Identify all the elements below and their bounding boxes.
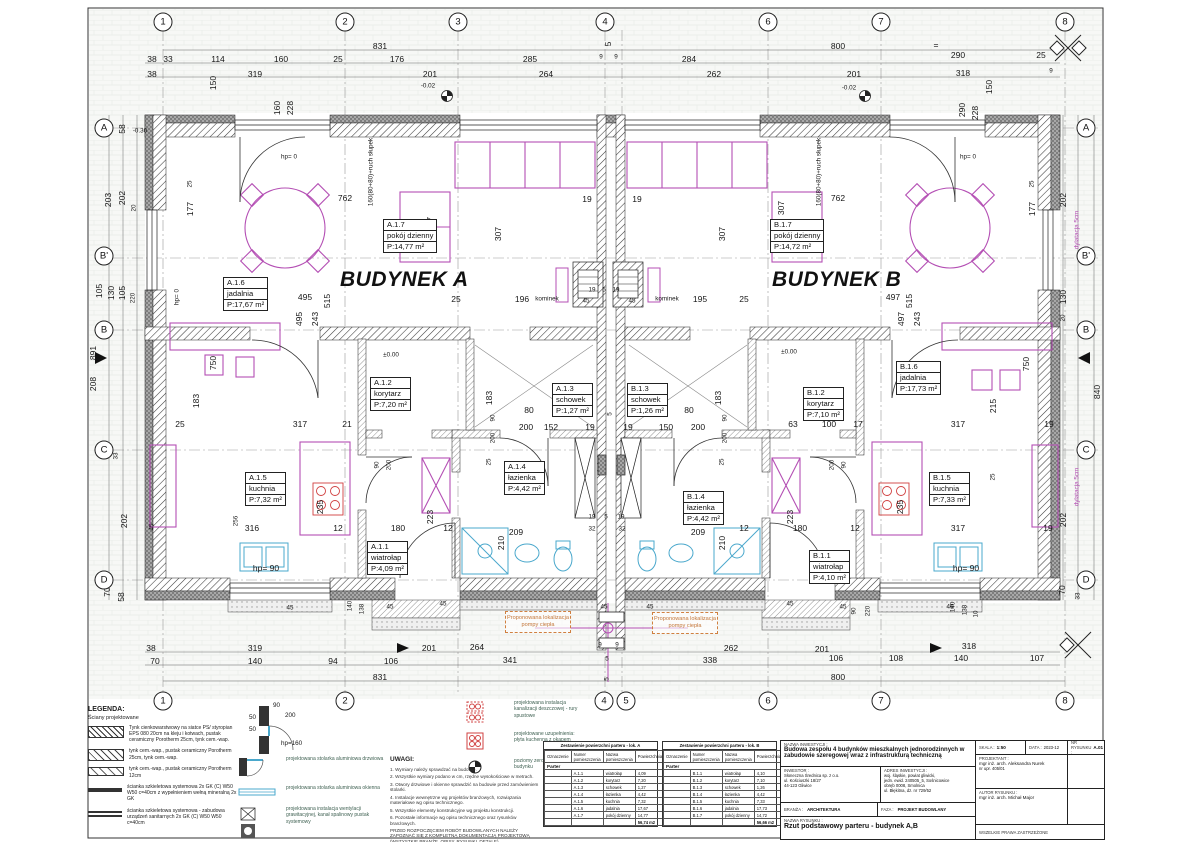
designer-signature-cell: [1068, 755, 1104, 789]
schedule-row: A.1.7pokój dzienny14,77: [545, 812, 665, 819]
legend-openings-block: 50 50 90 200 hp=160 projektowana stolark…: [237, 700, 389, 842]
schedule-row: B.1.6jadalnia17,73: [664, 805, 784, 812]
legend-wall-item: Tynk cienkowarstwowy na siatce PS/ styro…: [88, 725, 238, 744]
note-line: 1. Wymiary należy sprawdzać na budowie.: [390, 767, 542, 773]
schedule-cell: B.1.7: [690, 812, 722, 819]
schedule-row: B.1.3schowek1,26: [664, 784, 784, 791]
legend-item-window: projektowana stolarka aluminiowa okienna: [237, 785, 389, 799]
title-block: NAZWA INWESTYCJI : Budowa zespołu 4 budy…: [780, 740, 1105, 840]
schedule-cell: kuchnia: [722, 798, 754, 805]
wall-hatch-swatch: [88, 811, 122, 813]
detail-dim: 200: [285, 712, 296, 720]
discipline-value: ARCHITEKTURA: [807, 807, 840, 812]
schedule-title: Zestawien­ie powierzchni parteru - lok. …: [544, 742, 657, 750]
author-name: mgr inż. arch. Michał Major: [979, 795, 1064, 800]
schedule-cell: jadalnia: [722, 805, 754, 812]
detail-dim: 90: [273, 702, 280, 710]
schedule-cell: pokój dzienny: [603, 812, 635, 819]
legend-wall-item: ścianka szkieletowa systemowa - zabudowa…: [88, 808, 238, 827]
date-label: DATA :: [1029, 745, 1042, 750]
notes-title: UWAGI:: [390, 756, 542, 764]
schedule-cell: [545, 812, 572, 819]
vent-icon: [237, 806, 281, 840]
schedule-row: B.1.5kuchnia7,33: [664, 798, 784, 805]
schedule-row: A.1.5kuchnia7,32: [545, 798, 665, 805]
schedule-cell: łazienka: [722, 791, 754, 798]
drawing-sheet: 831800538331141602517628599284=290253831…: [0, 0, 1191, 842]
phase-value: PROJEKT BUDOWLANY: [898, 807, 947, 812]
note-line: 5. Wszystkie elementy konstrukcyjne wg p…: [390, 808, 542, 814]
date-value: 2023-12: [1044, 745, 1059, 750]
schedule-cell: [664, 798, 691, 805]
schedule-cell: jadalnia: [603, 805, 635, 812]
schedule-column-header: Numer pomieszczenia: [571, 751, 603, 763]
schedule-cell: B.1.2: [690, 777, 722, 784]
schedule-row: A.1.2korytarz7,20: [545, 777, 665, 784]
legend-item-text: projektowana stolarka aluminiowa okienna: [286, 785, 389, 791]
schedule-row: B.1.4łazienka4,42: [664, 791, 784, 798]
schedule-cell: pokój dzienny: [722, 812, 754, 819]
schedule-cell: kuchnia: [603, 798, 635, 805]
scale-label: SKALA :: [979, 745, 995, 750]
schedule-row: B.1.1wiatrołap4,10: [664, 770, 784, 777]
schedule-row: A.1.6jadalnia17,67: [545, 805, 665, 812]
schedule-row: A.1.4łazienka4,42: [545, 791, 665, 798]
schedule-cell: B.1.4: [690, 791, 722, 798]
note-line: PRZED ROZPOCZĘCIEM ROBÓT BUDOWLANYCH NAL…: [390, 828, 542, 842]
author-signature-cell: [1068, 789, 1104, 825]
schedule-cell: łazienka: [603, 791, 635, 798]
legend-item-door: projektowana stolarka aluminiowa drzwiow…: [237, 756, 389, 778]
door-icon: [237, 756, 281, 778]
schedule-cell: schowek: [722, 784, 754, 791]
note-line: 4. Instalacje wewnętrzne wg projektów br…: [390, 795, 542, 806]
room-schedule-a: Zestawien­ie powierzchni parteru - lok. …: [543, 741, 658, 827]
legend-wall-text: tynk cem.-wap., pustak ceramiczny Poroth…: [129, 748, 238, 761]
schedule-cell: [545, 770, 572, 777]
schedule-cell: 14,77: [635, 812, 664, 819]
detail-dim: 50: [249, 714, 256, 722]
schedule-column-header: Nazwa pomieszczenia: [603, 751, 635, 763]
building-b-title: BUDYNEK B: [772, 268, 901, 292]
schedule-cell: [664, 812, 691, 819]
legend-item-text: projektowana instalacja kanalizacji desz…: [514, 700, 583, 719]
note-line: 6. Pozostałe informacje wg opisu technic…: [390, 815, 542, 826]
phase-label: FAZA :: [881, 807, 894, 812]
legend-title: LEGENDA:: [88, 706, 238, 715]
schedule-section: Parter: [664, 763, 784, 770]
schedule-cell: korytarz: [603, 777, 635, 784]
legend-item-vent: projektowana instalacja wentylacji grawi…: [237, 806, 389, 840]
schedule-column-header: Powierzchnia: [635, 751, 664, 763]
room-schedule-b: Zestawien­ie powierzchni parteru - lok. …: [662, 741, 777, 827]
door-detail-diagram: 50 50 90 200 hp=160: [237, 700, 389, 756]
schedule-column-header: Oznaczenie: [664, 751, 691, 763]
schedule-cell: 4,09: [635, 770, 664, 777]
detail-dim: hp=160: [281, 740, 302, 748]
legend-wall-text: Tynk cienkowarstwowy na siatce PS/ styro…: [129, 725, 238, 744]
schedule-cell: 4,42: [635, 791, 664, 798]
legend-wall-text: tynk cem.-wap., pustak ceramiczny Poroth…: [129, 766, 238, 779]
schedule-cell: [545, 798, 572, 805]
schedule-column-header: Oznaczenie: [545, 751, 572, 763]
schedule-cell: wiatrołap: [722, 770, 754, 777]
schedule-cell: [664, 770, 691, 777]
schedule-cell: B.1.5: [690, 798, 722, 805]
drawing-number-label: NR RYSUNKU :: [1071, 741, 1091, 755]
legend-item-text: projektowana instalacja wentylacji grawi…: [286, 806, 389, 825]
wall-hatch-swatch: [88, 749, 124, 761]
schedule-row: A.1.3schowek1,27: [545, 784, 665, 791]
schedule-cell: A.1.1: [571, 770, 603, 777]
schedule-cell: A.1.3: [571, 784, 603, 791]
rights-note: WSZELKIE PRAWA ZASTRZEŻONE: [979, 830, 1048, 835]
rain-icon: [465, 700, 509, 724]
schedule-cell: A.1.4: [571, 791, 603, 798]
schedule-cell: [545, 784, 572, 791]
site-address-4: ul. Błękitna, dz. nr 729/52: [884, 788, 972, 793]
schedule-section: Parter: [545, 763, 665, 770]
legend-walls-block: LEGENDA: Ściany projektowane Tynk cienko…: [88, 706, 238, 831]
schedule-table: OznaczenieNumer pomieszczeniaNazwa pomie…: [544, 750, 665, 826]
notes-block: UWAGI: 1. Wymiary należy sprawdzać na bu…: [390, 756, 542, 842]
schedule-cell: korytarz: [722, 777, 754, 784]
drawing-name: Rzut podstawowy parteru - budynek A,B: [784, 823, 972, 830]
schedule-cell: 7,32: [635, 798, 664, 805]
investor-city: 44-123 Gliwice: [784, 783, 877, 788]
schedule-cell: schowek: [603, 784, 635, 791]
schedule-cell: B.1.3: [690, 784, 722, 791]
note-line: 2. Wszystkie wymiary podano w cm, rzędne…: [390, 774, 542, 780]
detail-dim: 50: [249, 726, 256, 734]
discipline-label: BRANŻA :: [784, 807, 803, 812]
scale-value: 1:50: [997, 745, 1006, 750]
schedule-cell: [664, 784, 691, 791]
schedule-cell: [664, 791, 691, 798]
legend-wall-item: tynk cem.-wap., pustak ceramiczny Poroth…: [88, 766, 238, 779]
drawing-number: A.01: [1093, 745, 1103, 750]
legend-item-text: projektowana stolarka aluminiowa drzwiow…: [286, 756, 389, 762]
schedule-cell: A.1.5: [571, 798, 603, 805]
schedule-cell: B.1.6: [690, 805, 722, 812]
note-line: 3. Otwory drzwiowe i okienne sprawdzić n…: [390, 782, 542, 793]
schedule-cell: 17,67: [635, 805, 664, 812]
stove-icon: [465, 731, 509, 751]
legend-wall-item: ścianka szkieletowa systemowa 2x GK (C) …: [88, 784, 238, 803]
wall-hatch-swatch: [88, 788, 122, 792]
legend-subtitle: Ściany projektowane: [88, 715, 238, 722]
schedule-cell: wiatrołap: [603, 770, 635, 777]
schedule-total: 56,74 m2: [635, 819, 664, 826]
schedule-cell: 1,27: [635, 784, 664, 791]
schedule-column-header: Nazwa pomieszczenia: [722, 751, 754, 763]
schedule-column-header: Numer pomieszczenia: [690, 751, 722, 763]
schedule-cell: A.1.2: [571, 777, 603, 784]
schedule-title: Zestawien­ie powierzchni parteru - lok. …: [663, 742, 776, 750]
designer-license: nr upr. 405/01: [979, 766, 1064, 771]
legend-wall-item: tynk cem.-wap., pustak ceramiczny Poroth…: [88, 748, 238, 761]
window-icon: [237, 785, 281, 799]
schedule-cell: [545, 805, 572, 812]
schedule-cell: [664, 805, 691, 812]
schedule-row: B.1.2korytarz7,10: [664, 777, 784, 784]
legend-wall-text: ścianka szkieletowa systemowa - zabudowa…: [127, 808, 238, 827]
building-a-title: BUDYNEK A: [340, 268, 469, 292]
schedule-cell: [545, 777, 572, 784]
project-name: Budowa zespołu 4 budynków mieszkalnych j…: [784, 747, 972, 759]
schedule-cell: [545, 791, 572, 798]
schedule-row: B.1.7pokój dzienny14,72: [664, 812, 784, 819]
schedule-cell: A.1.6: [571, 805, 603, 812]
schedule-cell: [664, 777, 691, 784]
wall-hatch-swatch: [88, 767, 124, 776]
legend-wall-text: ścianka szkieletowa systemowa 2x GK (C) …: [127, 784, 238, 803]
schedule-table: OznaczenieNumer pomieszczeniaNazwa pomie…: [663, 750, 784, 826]
legend-item-rain: projektowana instalacja kanalizacji desz…: [465, 700, 583, 724]
schedule-cell: 7,20: [635, 777, 664, 784]
schedule-cell: A.1.7: [571, 812, 603, 819]
schedule-cell: B.1.1: [690, 770, 722, 777]
schedule-row: A.1.1wiatrołap4,09: [545, 770, 665, 777]
wall-hatch-swatch: [88, 726, 124, 738]
